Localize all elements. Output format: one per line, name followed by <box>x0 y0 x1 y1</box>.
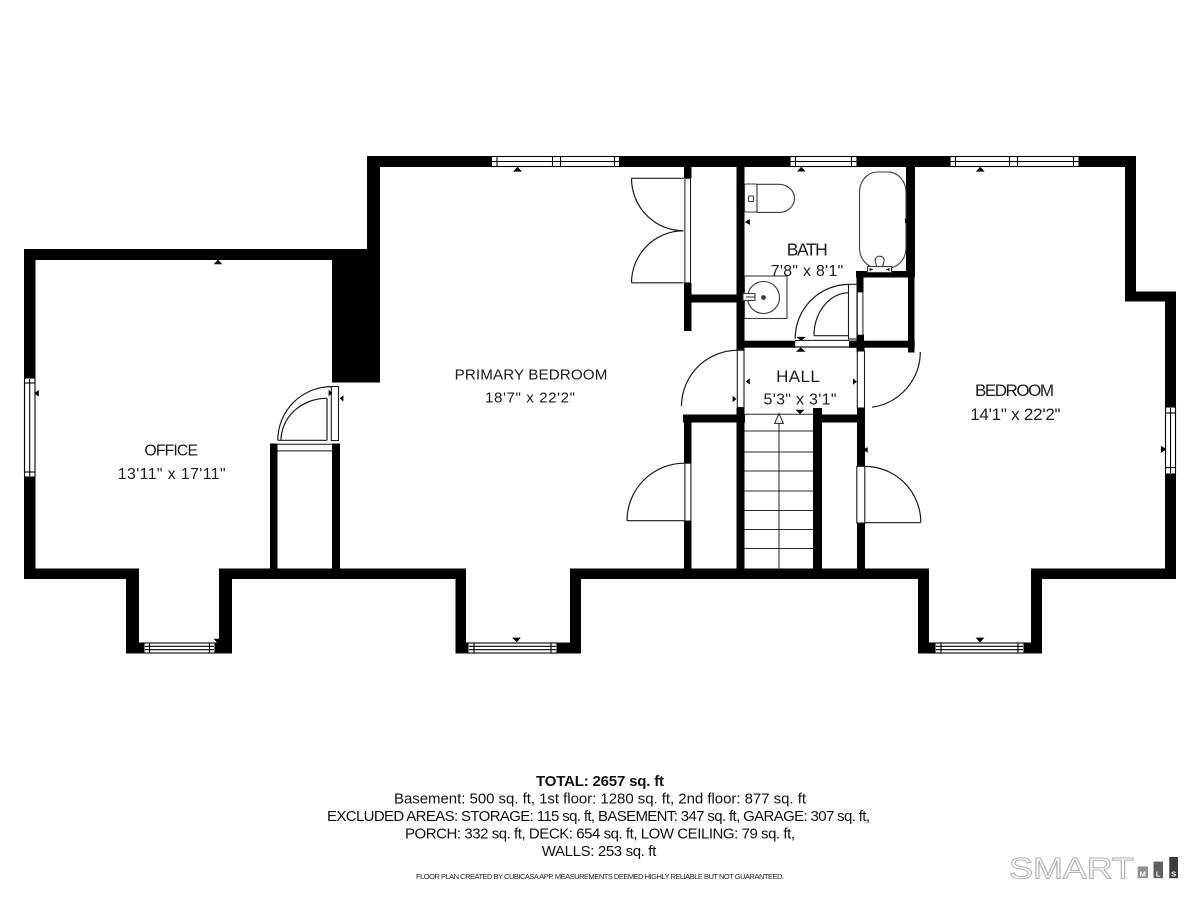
svg-text:HALL: HALL <box>776 367 820 386</box>
svg-text:5'3" x 3'1": 5'3" x 3'1" <box>764 392 837 409</box>
svg-text:S: S <box>1171 870 1176 879</box>
svg-text:TOTAL: 2657 sq. ft: TOTAL: 2657 sq. ft <box>536 773 664 790</box>
svg-text:FLOOR PLAN CREATED BY CUBICASA: FLOOR PLAN CREATED BY CUBICASA APP. MEAS… <box>416 872 784 881</box>
svg-text:7'8" x 8'1": 7'8" x 8'1" <box>771 263 843 280</box>
svg-text:PRIMARY BEDROOM: PRIMARY BEDROOM <box>455 367 608 384</box>
svg-text:M: M <box>1140 870 1146 879</box>
svg-text:WALLS: 253 sq. ft: WALLS: 253 sq. ft <box>542 843 657 860</box>
svg-text:EXCLUDED AREAS: STORAGE: 115 s: EXCLUDED AREAS: STORAGE: 115 sq. ft, BAS… <box>327 808 870 825</box>
svg-text:13'11" x 17'11": 13'11" x 17'11" <box>118 466 226 483</box>
svg-text:PORCH: 332 sq. ft, DECK: 654 s: PORCH: 332 sq. ft, DECK: 654 sq. ft, LOW… <box>405 826 795 843</box>
svg-text:BEDROOM: BEDROOM <box>975 381 1054 400</box>
svg-text:BATH: BATH <box>787 240 828 260</box>
svg-text:OFFICE: OFFICE <box>144 443 198 460</box>
svg-text:14'1" x 22'2": 14'1" x 22'2" <box>970 405 1060 424</box>
svg-text:18'7" x 22'2": 18'7" x 22'2" <box>485 390 575 407</box>
svg-text:L: L <box>1156 870 1161 879</box>
svg-text:Basement: 500 sq. ft, 1st floo: Basement: 500 sq. ft, 1st floor: 1280 sq… <box>394 791 807 808</box>
svg-text:SMART: SMART <box>1009 853 1134 886</box>
